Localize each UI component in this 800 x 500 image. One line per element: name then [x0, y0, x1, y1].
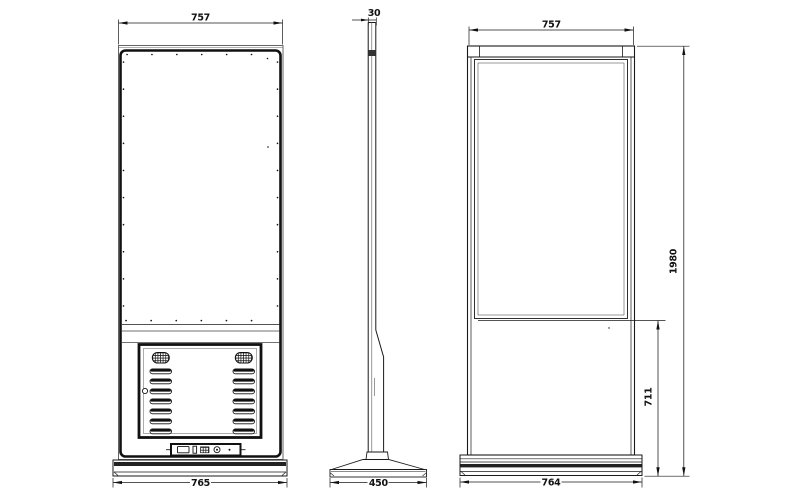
- front-cabinet-outline: [468, 46, 635, 455]
- screen-area: [475, 60, 628, 319]
- dim-side-depth-top: 30: [352, 8, 381, 25]
- dim-front-width-top: 757: [469, 20, 634, 46]
- rear-access-panel: [139, 345, 261, 438]
- indicator-dot-icon: [229, 449, 231, 451]
- speaker-grille-right: [235, 353, 252, 364]
- dim-label-front-screen-bottom: 711: [644, 388, 655, 407]
- dim-back-width-bottom: 765: [113, 478, 287, 489]
- io-port-strip: [166, 444, 246, 456]
- dim-front-lower-height: 711: [644, 321, 659, 477]
- speaker-grille-left: [152, 353, 169, 364]
- rear-bulge-outline: [376, 330, 384, 452]
- technical-drawing-page: 757: [0, 0, 800, 500]
- back-cabinet-outline: [119, 46, 284, 460]
- dim-label-front-height: 1980: [669, 248, 680, 274]
- front-base-plinth: [460, 455, 642, 476]
- back-base-plinth: [113, 460, 287, 476]
- dim-label-side-top: 30: [368, 8, 381, 19]
- dim-front-width-bottom: 764: [460, 477, 642, 488]
- dim-label-back-top: 757: [191, 13, 210, 24]
- side-base-foot: [330, 452, 427, 477]
- dim-label-side-base: 450: [369, 478, 389, 489]
- side-profile: [368, 23, 383, 453]
- front-view: 757 764 1: [460, 20, 690, 489]
- dim-front-overall-height: 1980: [637, 46, 690, 476]
- dim-label-back-bottom: 765: [191, 478, 210, 489]
- lock-hole-icon: [142, 388, 147, 393]
- dim-label-front-top: 757: [542, 20, 561, 31]
- dim-label-front-bottom: 764: [542, 477, 562, 488]
- side-view: 30 450: [330, 8, 427, 489]
- vent-louvers-left: [150, 369, 172, 434]
- dim-side-base-width: 450: [330, 478, 427, 489]
- vent-louvers-right: [233, 369, 255, 434]
- back-view: 757: [113, 13, 287, 489]
- screw-dots: [124, 55, 278, 321]
- kiosk-three-view-drawing: 757: [0, 0, 800, 500]
- dot-grid-port-icon: [201, 447, 210, 453]
- dim-back-width-top: 757: [119, 13, 283, 45]
